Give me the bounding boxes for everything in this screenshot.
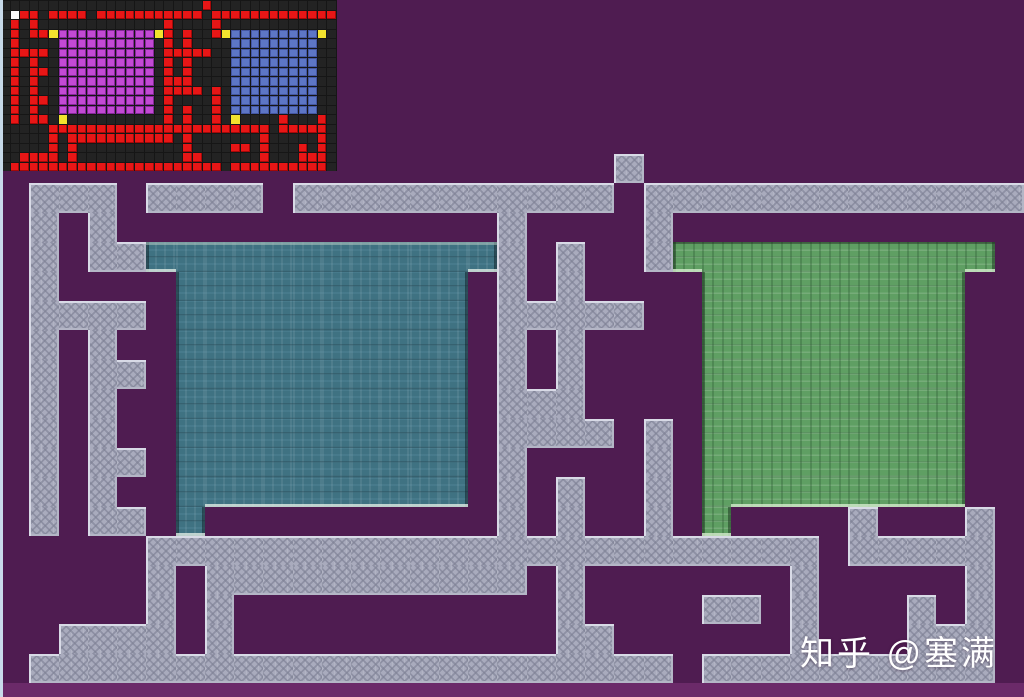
room-a-floor-cell bbox=[234, 301, 263, 330]
minimap-wall-cell bbox=[183, 125, 192, 133]
minimap-room-a-cell bbox=[78, 87, 86, 95]
minimap-wall-cell bbox=[174, 163, 182, 171]
minimap-empty-cell bbox=[155, 106, 163, 114]
minimap-wall-cell bbox=[155, 11, 163, 19]
room-b-floor-cell bbox=[936, 242, 965, 272]
minimap-wall-cell bbox=[78, 134, 86, 143]
maze-wall-cell bbox=[497, 330, 527, 360]
minimap-empty-cell bbox=[174, 153, 182, 162]
room-a-floor-cell bbox=[351, 477, 380, 507]
minimap-room-a-cell bbox=[135, 77, 144, 86]
maze-wall-cell bbox=[468, 654, 497, 683]
minimap-room-b-cell bbox=[279, 68, 288, 76]
minimap-wall-cell bbox=[212, 96, 221, 105]
minimap-empty-cell bbox=[174, 115, 182, 124]
minimap-wall-cell bbox=[30, 11, 38, 19]
minimap-empty-cell bbox=[20, 134, 29, 143]
minimap-empty-cell bbox=[20, 1, 29, 10]
maze-wall-cell bbox=[88, 624, 117, 654]
minimap-empty-cell bbox=[59, 153, 67, 162]
room-a-floor-cell bbox=[410, 477, 439, 507]
minimap-wall-cell bbox=[183, 77, 192, 86]
maze-wall-cell bbox=[556, 507, 585, 536]
minimap-wall-cell bbox=[68, 144, 77, 152]
minimap-room-a-cell bbox=[135, 30, 144, 38]
minimap-room-b-cell bbox=[270, 58, 278, 67]
minimap-empty-cell bbox=[251, 153, 259, 162]
minimap-room-b-cell bbox=[270, 77, 278, 86]
minimap-room-b-cell bbox=[299, 68, 307, 76]
minimap-room-a-cell bbox=[97, 58, 106, 67]
minimap-room-a-cell bbox=[97, 87, 106, 95]
minimap-wall-cell bbox=[308, 125, 317, 133]
minimap-empty-cell bbox=[299, 1, 307, 10]
minimap-room-a-cell bbox=[59, 58, 67, 67]
minimap-empty-cell bbox=[299, 115, 307, 124]
maze-wall-cell bbox=[263, 654, 293, 683]
maze-wall-cell bbox=[205, 595, 234, 624]
watermark-text: 知乎 @塞满 bbox=[800, 626, 998, 675]
minimap-room-b-cell bbox=[241, 87, 250, 95]
room-a-floor-cell bbox=[351, 360, 380, 389]
minimap-empty-cell bbox=[174, 1, 182, 10]
maze-wall-cell bbox=[468, 183, 497, 213]
minimap-empty-cell bbox=[222, 77, 230, 86]
maze-wall-cell bbox=[88, 213, 117, 242]
minimap-empty-cell bbox=[145, 20, 154, 29]
minimap-wall-cell bbox=[145, 163, 154, 171]
room-a-floor-cell bbox=[439, 330, 468, 360]
minimap-empty-cell bbox=[30, 1, 38, 10]
room-a-floor-cell bbox=[410, 272, 439, 301]
minimap-empty-cell bbox=[87, 1, 96, 10]
minimap-empty-cell bbox=[308, 144, 317, 152]
minimap-room-a-cell bbox=[126, 30, 134, 38]
minimap-room-b-cell bbox=[270, 87, 278, 95]
room-b-floor-cell bbox=[790, 477, 819, 507]
minimap-empty-cell bbox=[49, 20, 58, 29]
room-a-floor-cell bbox=[322, 360, 351, 389]
minimap-wall-cell bbox=[68, 134, 77, 143]
room-a-floor-cell bbox=[205, 477, 234, 507]
maze-wall-cell bbox=[527, 536, 556, 566]
minimap-wall-cell bbox=[39, 30, 48, 38]
room-a-floor-cell bbox=[176, 477, 205, 507]
minimap-room-a-cell bbox=[68, 30, 77, 38]
room-b-floor-cell bbox=[702, 507, 731, 536]
minimap-room-a-cell bbox=[78, 58, 86, 67]
minimap-room-a-cell bbox=[126, 68, 134, 76]
minimap-wall-cell bbox=[241, 125, 250, 133]
minimap-wall-cell bbox=[30, 153, 38, 162]
minimap-empty-cell bbox=[59, 144, 67, 152]
minimap-empty-cell bbox=[308, 20, 317, 29]
room-b-floor-cell bbox=[702, 448, 731, 477]
room-a-floor-cell bbox=[176, 507, 205, 536]
minimap-wall-cell bbox=[11, 68, 19, 76]
minimap-wall-cell bbox=[30, 77, 38, 86]
minimap-wall-cell bbox=[126, 134, 134, 143]
minimap-room-a-cell bbox=[59, 39, 67, 48]
minimap-room-b-cell bbox=[289, 58, 298, 67]
maze-wall-cell bbox=[497, 360, 527, 389]
room-a-floor-cell bbox=[176, 242, 205, 272]
minimap-wall-cell bbox=[260, 163, 269, 171]
room-a-floor-cell bbox=[205, 360, 234, 389]
minimap[interactable] bbox=[0, 0, 337, 171]
maze-wall-cell bbox=[556, 419, 585, 448]
minimap-wall-cell bbox=[212, 20, 221, 29]
maze-wall-cell bbox=[556, 330, 585, 360]
minimap-empty-cell bbox=[193, 77, 202, 86]
minimap-wall-cell bbox=[30, 20, 38, 29]
room-b-floor-cell bbox=[878, 301, 907, 330]
minimap-wall-cell bbox=[241, 11, 250, 19]
minimap-wall-cell bbox=[97, 163, 106, 171]
room-a-floor-cell bbox=[351, 389, 380, 419]
minimap-wall-cell bbox=[11, 20, 19, 29]
minimap-wall-cell bbox=[164, 115, 173, 124]
maze-wall-cell bbox=[497, 183, 527, 213]
maze-wall-cell bbox=[29, 389, 59, 419]
room-a-floor-cell bbox=[293, 301, 322, 330]
room-b-floor-cell bbox=[731, 477, 761, 507]
minimap-wall-cell bbox=[270, 11, 278, 19]
minimap-empty-cell bbox=[203, 144, 211, 152]
room-b-floor-cell bbox=[731, 272, 761, 301]
minimap-room-b-cell bbox=[241, 39, 250, 48]
maze-wall-cell bbox=[644, 448, 673, 477]
minimap-room-b-cell bbox=[260, 106, 269, 114]
minimap-room-a-cell bbox=[97, 96, 106, 105]
minimap-room-a-cell bbox=[116, 96, 125, 105]
minimap-room-a-cell bbox=[116, 49, 125, 57]
maze-wall-cell bbox=[527, 389, 556, 419]
minimap-wall-cell bbox=[231, 163, 240, 171]
minimap-empty-cell bbox=[49, 58, 58, 67]
minimap-room-a-cell bbox=[97, 39, 106, 48]
room-b-floor-cell bbox=[819, 389, 848, 419]
minimap-empty-cell bbox=[78, 20, 86, 29]
maze-wall-cell bbox=[556, 389, 585, 419]
minimap-wall-cell bbox=[193, 163, 202, 171]
maze-wall-cell bbox=[995, 183, 1024, 213]
minimap-door-marker bbox=[222, 30, 230, 38]
room-b-floor-cell bbox=[907, 419, 936, 448]
maze-wall-cell bbox=[761, 183, 790, 213]
minimap-wall-cell bbox=[183, 163, 192, 171]
bottom-strip bbox=[0, 683, 1024, 697]
maze-wall-cell bbox=[117, 448, 146, 477]
minimap-empty-cell bbox=[39, 20, 48, 29]
minimap-wall-cell bbox=[289, 163, 298, 171]
room-a-floor-cell bbox=[205, 242, 234, 272]
minimap-wall-cell bbox=[11, 96, 19, 105]
minimap-wall-cell bbox=[308, 163, 317, 171]
room-b-floor-cell bbox=[848, 360, 878, 389]
room-a-floor-cell bbox=[176, 360, 205, 389]
minimap-empty-cell bbox=[193, 106, 202, 114]
room-a-floor-cell bbox=[380, 301, 410, 330]
minimap-empty-cell bbox=[203, 106, 211, 114]
minimap-empty-cell bbox=[231, 153, 240, 162]
minimap-wall-cell bbox=[135, 125, 144, 133]
room-a-floor-cell bbox=[293, 272, 322, 301]
minimap-room-b-cell bbox=[241, 96, 250, 105]
maze-wall-cell bbox=[146, 624, 176, 654]
minimap-room-a-cell bbox=[78, 106, 86, 114]
room-b-floor-cell bbox=[907, 330, 936, 360]
minimap-empty-cell bbox=[318, 39, 326, 48]
room-b-floor-cell bbox=[761, 419, 790, 448]
room-a-floor-cell bbox=[439, 419, 468, 448]
minimap-empty-cell bbox=[116, 153, 125, 162]
minimap-wall-cell bbox=[97, 11, 106, 19]
maze-wall-cell bbox=[205, 624, 234, 654]
maze-wall-cell bbox=[351, 654, 380, 683]
room-a-floor-cell bbox=[234, 419, 263, 448]
minimap-empty-cell bbox=[97, 20, 106, 29]
maze-wall-cell bbox=[965, 595, 995, 624]
minimap-room-b-cell bbox=[279, 106, 288, 114]
maze-wall-cell bbox=[410, 183, 439, 213]
minimap-room-b-cell bbox=[308, 87, 317, 95]
room-a-floor-cell bbox=[263, 330, 293, 360]
minimap-empty-cell bbox=[327, 163, 336, 171]
minimap-wall-cell bbox=[183, 87, 192, 95]
maze-wall-cell bbox=[29, 477, 59, 507]
minimap-empty-cell bbox=[174, 39, 182, 48]
minimap-empty-cell bbox=[318, 1, 326, 10]
minimap-room-b-cell bbox=[279, 96, 288, 105]
room-a-floor-cell bbox=[234, 242, 263, 272]
minimap-empty-cell bbox=[164, 153, 173, 162]
minimap-wall-cell bbox=[78, 11, 86, 19]
minimap-wall-cell bbox=[183, 68, 192, 76]
minimap-wall-cell bbox=[222, 125, 230, 133]
maze-wall-cell bbox=[965, 183, 995, 213]
maze-wall-cell bbox=[88, 389, 117, 419]
minimap-empty-cell bbox=[145, 153, 154, 162]
maze-wall-cell bbox=[585, 624, 614, 654]
room-b-floor-cell bbox=[878, 242, 907, 272]
minimap-room-b-cell bbox=[231, 58, 240, 67]
minimap-wall-cell bbox=[183, 39, 192, 48]
maze-wall-cell bbox=[146, 536, 176, 566]
room-a-floor-cell bbox=[410, 360, 439, 389]
room-b-floor-cell bbox=[965, 242, 995, 272]
minimap-empty-cell bbox=[49, 39, 58, 48]
minimap-room-b-cell bbox=[251, 77, 259, 86]
minimap-empty-cell bbox=[183, 20, 192, 29]
minimap-wall-cell bbox=[116, 125, 125, 133]
minimap-wall-cell bbox=[126, 125, 134, 133]
maze-wall-cell bbox=[497, 566, 527, 595]
minimap-empty-cell bbox=[87, 144, 96, 152]
maze-wall-cell bbox=[731, 595, 761, 624]
maze-wall-cell bbox=[644, 536, 673, 566]
minimap-wall-cell bbox=[30, 49, 38, 57]
minimap-empty-cell bbox=[155, 1, 163, 10]
minimap-room-a-cell bbox=[135, 106, 144, 114]
maze-wall-cell bbox=[556, 242, 585, 272]
room-a-floor-cell bbox=[234, 448, 263, 477]
maze-wall-cell bbox=[936, 536, 965, 566]
maze-wall-cell bbox=[907, 536, 936, 566]
minimap-room-b-cell bbox=[260, 68, 269, 76]
maze-wall-cell bbox=[556, 654, 585, 683]
minimap-wall-cell bbox=[20, 163, 29, 171]
maze-wall-cell bbox=[527, 183, 556, 213]
minimap-room-b-cell bbox=[231, 87, 240, 95]
room-a-floor-cell bbox=[176, 448, 205, 477]
minimap-empty-cell bbox=[135, 144, 144, 152]
room-b-floor-cell bbox=[702, 330, 731, 360]
room-a-floor-cell bbox=[263, 448, 293, 477]
room-a-floor-cell bbox=[322, 330, 351, 360]
minimap-wall-cell bbox=[39, 163, 48, 171]
minimap-room-a-cell bbox=[68, 77, 77, 86]
room-a-floor-cell bbox=[380, 242, 410, 272]
minimap-wall-cell bbox=[193, 49, 202, 57]
minimap-room-b-cell bbox=[260, 49, 269, 57]
minimap-empty-cell bbox=[203, 30, 211, 38]
minimap-room-b-cell bbox=[231, 68, 240, 76]
minimap-room-a-cell bbox=[97, 68, 106, 76]
minimap-wall-cell bbox=[39, 68, 48, 76]
maze-wall-cell bbox=[644, 419, 673, 448]
minimap-empty-cell bbox=[135, 1, 144, 10]
minimap-wall-cell bbox=[193, 11, 202, 19]
minimap-wall-cell bbox=[68, 125, 77, 133]
room-b-floor-cell bbox=[819, 330, 848, 360]
maze-wall-cell bbox=[322, 566, 351, 595]
minimap-room-a-cell bbox=[135, 87, 144, 95]
maze-wall-cell bbox=[293, 654, 322, 683]
room-b-floor-cell bbox=[790, 389, 819, 419]
minimap-room-a-cell bbox=[135, 68, 144, 76]
room-a-floor-cell bbox=[322, 301, 351, 330]
minimap-room-a-cell bbox=[87, 30, 96, 38]
maze-wall-cell bbox=[468, 536, 497, 566]
minimap-empty-cell bbox=[260, 20, 269, 29]
minimap-empty-cell bbox=[49, 1, 58, 10]
minimap-wall-cell bbox=[174, 77, 182, 86]
minimap-empty-cell bbox=[78, 153, 86, 162]
minimap-wall-cell bbox=[107, 134, 115, 143]
minimap-room-a-cell bbox=[78, 96, 86, 105]
maze-wall-cell bbox=[702, 595, 731, 624]
room-a-floor-cell bbox=[263, 389, 293, 419]
room-a-floor-cell bbox=[351, 242, 380, 272]
minimap-wall-cell bbox=[20, 11, 29, 19]
minimap-wall-cell bbox=[308, 11, 317, 19]
room-a-floor-cell bbox=[205, 448, 234, 477]
maze-wall-cell bbox=[673, 536, 702, 566]
minimap-empty-cell bbox=[135, 20, 144, 29]
room-a-floor-cell bbox=[351, 272, 380, 301]
minimap-empty-cell bbox=[20, 68, 29, 76]
minimap-empty-cell bbox=[289, 20, 298, 29]
minimap-wall-cell bbox=[145, 134, 154, 143]
minimap-room-a-cell bbox=[107, 106, 115, 114]
minimap-empty-cell bbox=[49, 96, 58, 105]
minimap-wall-cell bbox=[164, 77, 173, 86]
minimap-empty-cell bbox=[222, 68, 230, 76]
minimap-empty-cell bbox=[222, 144, 230, 152]
minimap-room-a-cell bbox=[68, 58, 77, 67]
minimap-wall-cell bbox=[164, 20, 173, 29]
minimap-wall-cell bbox=[30, 163, 38, 171]
maze-wall-cell bbox=[761, 654, 790, 683]
maze-wall-cell bbox=[644, 477, 673, 507]
minimap-wall-cell bbox=[126, 163, 134, 171]
minimap-wall-cell bbox=[135, 163, 144, 171]
minimap-empty-cell bbox=[222, 58, 230, 67]
minimap-wall-cell bbox=[193, 153, 202, 162]
maze-wall-cell bbox=[234, 536, 263, 566]
room-b-floor-cell bbox=[907, 360, 936, 389]
minimap-wall-cell bbox=[78, 163, 86, 171]
minimap-empty-cell bbox=[107, 1, 115, 10]
minimap-empty-cell bbox=[203, 68, 211, 76]
minimap-room-a-cell bbox=[87, 49, 96, 57]
minimap-wall-cell bbox=[203, 163, 211, 171]
minimap-empty-cell bbox=[270, 125, 278, 133]
minimap-wall-cell bbox=[49, 144, 58, 152]
room-b-floor-cell bbox=[702, 301, 731, 330]
minimap-wall-cell bbox=[222, 11, 230, 19]
minimap-room-b-cell bbox=[308, 77, 317, 86]
minimap-empty-cell bbox=[203, 39, 211, 48]
minimap-empty-cell bbox=[203, 153, 211, 162]
minimap-room-b-cell bbox=[241, 30, 250, 38]
minimap-wall-cell bbox=[318, 153, 326, 162]
maze-wall-cell bbox=[117, 242, 146, 272]
minimap-empty-cell bbox=[39, 58, 48, 67]
minimap-empty-cell bbox=[308, 134, 317, 143]
minimap-room-b-cell bbox=[241, 77, 250, 86]
minimap-wall-cell bbox=[183, 30, 192, 38]
minimap-wall-cell bbox=[164, 96, 173, 105]
maze-wall-cell bbox=[731, 183, 761, 213]
minimap-wall-cell bbox=[174, 11, 182, 19]
minimap-room-b-cell bbox=[279, 77, 288, 86]
minimap-wall-cell bbox=[87, 125, 96, 133]
minimap-empty-cell bbox=[327, 144, 336, 152]
minimap-empty-cell bbox=[174, 58, 182, 67]
minimap-wall-cell bbox=[231, 144, 240, 152]
maze-wall-cell bbox=[702, 536, 731, 566]
maze-wall-cell bbox=[88, 330, 117, 360]
minimap-empty-cell bbox=[279, 153, 288, 162]
minimap-room-b-cell bbox=[241, 68, 250, 76]
minimap-empty-cell bbox=[39, 1, 48, 10]
room-b-floor-cell bbox=[702, 360, 731, 389]
minimap-empty-cell bbox=[203, 58, 211, 67]
room-a-floor-cell bbox=[205, 301, 234, 330]
minimap-room-a-cell bbox=[59, 87, 67, 95]
room-b-floor-cell bbox=[848, 389, 878, 419]
maze-wall-cell bbox=[380, 183, 410, 213]
minimap-empty-cell bbox=[68, 20, 77, 29]
minimap-empty-cell bbox=[39, 11, 48, 19]
minimap-room-a-cell bbox=[87, 96, 96, 105]
minimap-empty-cell bbox=[222, 96, 230, 105]
room-a-floor-cell bbox=[293, 477, 322, 507]
minimap-empty-cell bbox=[222, 20, 230, 29]
minimap-empty-cell bbox=[222, 39, 230, 48]
